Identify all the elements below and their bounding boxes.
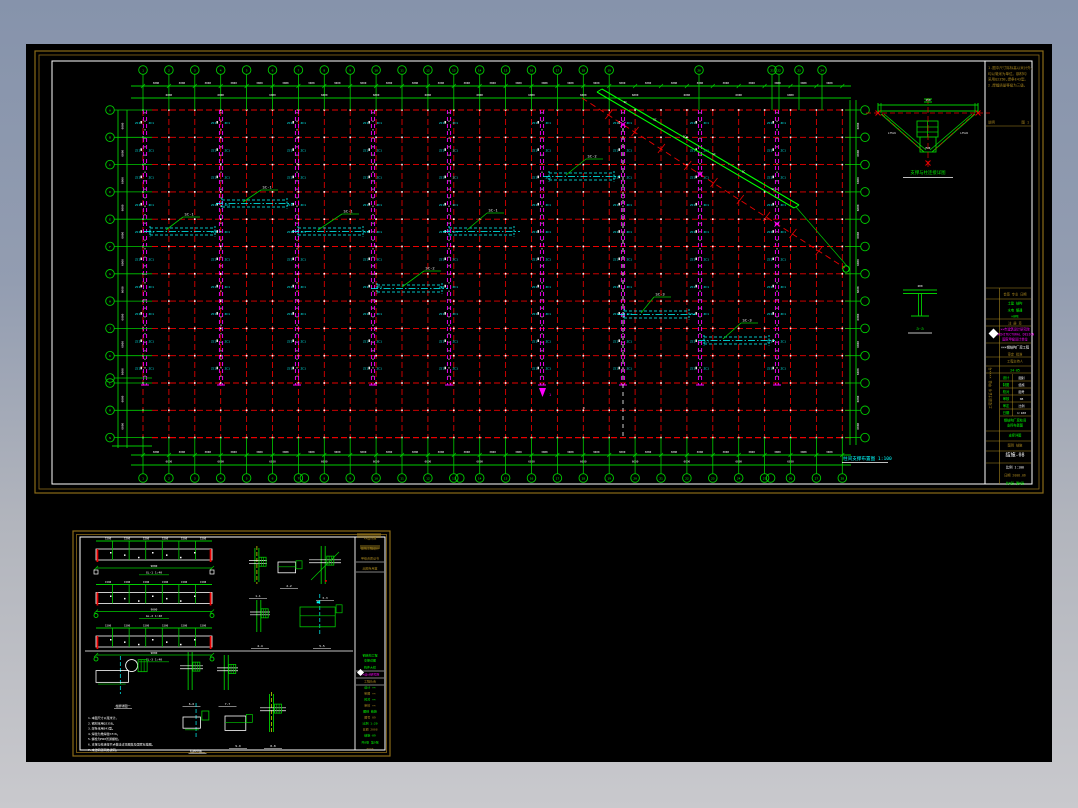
- svg-text:6000: 6000: [121, 395, 125, 402]
- svg-text:1.图中尺寸除标高以米计外,: 1.图中尺寸除标高以米计外,: [988, 65, 1033, 70]
- svg-text:3000: 3000: [619, 81, 626, 85]
- svg-text:5.螺栓为M20普通螺栓。: 5.螺栓为M20普通螺栓。: [88, 736, 121, 741]
- svg-text:3000: 3000: [464, 450, 471, 454]
- svg-text:ZC1: ZC1: [690, 176, 696, 180]
- svg-text:3000: 3000: [386, 450, 393, 454]
- svg-text:9: 9: [349, 476, 351, 480]
- svg-text:6000: 6000: [528, 93, 535, 97]
- svg-text:ZC1: ZC1: [690, 203, 696, 207]
- canvas-background: [26, 44, 1052, 762]
- svg-text:ZC1: ZC1: [135, 203, 141, 207]
- svg-text:ZC1: ZC1: [211, 285, 217, 289]
- svg-text:钢结构工程: 钢结构工程: [362, 653, 377, 658]
- svg-text:××××: ××××: [366, 747, 373, 751]
- svg-text:3000: 3000: [723, 450, 730, 454]
- svg-text:14: 14: [478, 476, 482, 480]
- svg-text:1500: 1500: [200, 537, 207, 541]
- svg-text:6000: 6000: [269, 93, 276, 97]
- svg-text:1500: 1500: [162, 537, 169, 541]
- svg-text:ZC1: ZC1: [377, 258, 383, 262]
- svg-text:×0#E: ×0#E: [1011, 315, 1019, 319]
- svg-text:ZC1: ZC1: [211, 339, 217, 343]
- svg-text:3000: 3000: [774, 450, 781, 454]
- svg-text:ZC1: ZC1: [767, 285, 773, 289]
- svg-text:校对: 校对: [1003, 389, 1010, 394]
- svg-text:制图 ××: 制图 ××: [364, 691, 376, 696]
- svg-text:结施: 结施: [1018, 382, 1024, 387]
- svg-text:ZC1: ZC1: [546, 285, 552, 289]
- svg-text:×××钢结构厂房工程: ×××钢结构厂房工程: [1001, 345, 1030, 350]
- svg-text:ZC1: ZC1: [704, 203, 710, 207]
- svg-text:ZC1: ZC1: [225, 339, 231, 343]
- svg-text:6000: 6000: [217, 93, 224, 97]
- svg-text:ZC1: ZC1: [613, 312, 619, 316]
- svg-text:6000: 6000: [856, 122, 860, 129]
- svg-text:18: 18: [581, 68, 585, 72]
- svg-text:6-6: 6-6: [189, 702, 195, 706]
- svg-text:ZC1: ZC1: [363, 339, 369, 343]
- svg-text:ZC1: ZC1: [613, 367, 619, 371]
- svg-text:3.焊条采用E43型。: 3.焊条采用E43型。: [88, 726, 115, 731]
- svg-text:ZC1: ZC1: [135, 230, 141, 234]
- svg-text:F: F: [109, 245, 111, 249]
- svg-text:3000: 3000: [153, 81, 160, 85]
- svg-text:SC-1: SC-1: [263, 185, 273, 190]
- svg-text:ZC1: ZC1: [439, 339, 445, 343]
- svg-text:9000: 9000: [151, 651, 158, 655]
- svg-text:ZC1: ZC1: [627, 203, 633, 207]
- svg-text:审定: 审定: [1003, 403, 1010, 408]
- svg-text:ZC1: ZC1: [225, 230, 231, 234]
- svg-text:SC-1: SC-1: [489, 208, 499, 213]
- svg-text:ZC1: ZC1: [453, 176, 459, 180]
- svg-text:3000: 3000: [205, 450, 212, 454]
- svg-text:ZC1: ZC1: [767, 203, 773, 207]
- svg-text:6000: 6000: [856, 259, 860, 266]
- svg-text:28: 28: [840, 476, 844, 480]
- svg-text:6: 6: [272, 68, 274, 72]
- svg-text:19: 19: [607, 476, 611, 480]
- svg-text:均以毫米为单位。钢材均: 均以毫米为单位。钢材均: [988, 71, 1027, 76]
- svg-text:ZC1: ZC1: [225, 312, 231, 316]
- svg-text:ZC1: ZC1: [149, 148, 155, 152]
- svg-text:ZC1: ZC1: [149, 176, 155, 180]
- svg-text:6000: 6000: [787, 93, 794, 97]
- svg-text:3000: 3000: [412, 81, 419, 85]
- svg-text:ZC1: ZC1: [767, 312, 773, 316]
- svg-text:ZC1: ZC1: [532, 176, 538, 180]
- svg-text:9-9: 9-9: [235, 744, 241, 748]
- svg-text:3000: 3000: [360, 450, 367, 454]
- svg-text:ZC1: ZC1: [453, 285, 459, 289]
- svg-text:N: N: [109, 436, 111, 440]
- svg-text:ZC1: ZC1: [781, 312, 787, 316]
- svg-text:ZC1: ZC1: [627, 230, 633, 234]
- svg-text:SC-2: SC-2: [426, 266, 435, 271]
- svg-text:出图专用章: 出图专用章: [362, 566, 377, 571]
- svg-text:24-05: 24-05: [1010, 369, 1020, 373]
- svg-text:ZC1: ZC1: [149, 367, 155, 371]
- svg-text:L75×6: L75×6: [960, 131, 968, 135]
- svg-text:3000: 3000: [645, 450, 652, 454]
- svg-text:图 1: 图 1: [1022, 121, 1029, 125]
- svg-text:G: G: [109, 272, 111, 276]
- svg-text:10: 10: [374, 68, 378, 72]
- svg-text:1500: 1500: [181, 624, 188, 628]
- svg-text:比例 1:100: 比例 1:100: [1006, 465, 1024, 470]
- svg-text:9000: 9000: [151, 564, 158, 568]
- svg-text:ZC1: ZC1: [613, 230, 619, 234]
- svg-text:9000: 9000: [151, 608, 158, 612]
- svg-text:ZC1: ZC1: [135, 176, 141, 180]
- svg-text:ZC1: ZC1: [363, 312, 369, 316]
- svg-text:3000: 3000: [282, 450, 289, 454]
- svg-text:7: 7: [297, 68, 299, 72]
- svg-text:3000: 3000: [800, 81, 807, 85]
- svg-text:ZC1: ZC1: [690, 339, 696, 343]
- svg-text:6000: 6000: [121, 313, 125, 320]
- svg-text:ZC1: ZC1: [453, 367, 459, 371]
- svg-text:20: 20: [697, 68, 701, 72]
- svg-text:ZC1: ZC1: [287, 121, 293, 125]
- svg-text:ZC1: ZC1: [627, 339, 633, 343]
- svg-text:3000: 3000: [308, 81, 315, 85]
- svg-text:3000: 3000: [179, 450, 186, 454]
- svg-text:ZC1: ZC1: [704, 367, 710, 371]
- svg-text:工程主持人: 工程主持人: [1007, 359, 1024, 364]
- svg-text:3000: 3000: [489, 81, 496, 85]
- svg-text:会签 专业 日期: 会签 专业 日期: [1004, 292, 1027, 297]
- svg-text:8-8: 8-8: [270, 744, 276, 748]
- cad-drawing: ZC1ZC1ZC1ZC1ZC1ZC1ZC1ZC1ZC1ZC1ZC1ZC1ZC1Z…: [0, 0, 1078, 808]
- svg-text:1500: 1500: [105, 624, 112, 628]
- svg-text:ZC1: ZC1: [301, 121, 307, 125]
- svg-text:ZC1: ZC1: [287, 258, 293, 262]
- svg-text:土建 结构: 土建 结构: [1008, 301, 1023, 306]
- svg-text:ZC1: ZC1: [135, 285, 141, 289]
- svg-text:6000: 6000: [121, 286, 125, 293]
- svg-text:ZC1: ZC1: [613, 148, 619, 152]
- svg-text:ZC1: ZC1: [767, 339, 773, 343]
- section-detail-label: a-a: [916, 326, 924, 331]
- svg-text:M: M: [109, 409, 111, 413]
- svg-text:ZC1: ZC1: [439, 312, 445, 316]
- svg-text:ZC1: ZC1: [149, 339, 155, 343]
- svg-text:J: J: [109, 327, 111, 331]
- svg-text:3000: 3000: [748, 81, 755, 85]
- svg-text:6000: 6000: [735, 93, 742, 97]
- svg-text:ZC1: ZC1: [149, 312, 155, 316]
- svg-text:C: C: [109, 163, 111, 167]
- svg-text:ZC1: ZC1: [627, 148, 633, 152]
- svg-text:ZC1: ZC1: [613, 203, 619, 207]
- svg-text:21: 21: [659, 476, 663, 480]
- svg-text:27: 27: [815, 476, 819, 480]
- svg-text:23: 23: [797, 68, 801, 72]
- svg-text:支撑详图: 支撑详图: [364, 658, 376, 663]
- svg-text:ZC1: ZC1: [546, 148, 552, 152]
- svg-text:H: H: [109, 299, 111, 303]
- svg-text:6: 6: [272, 476, 274, 480]
- svg-text:ZC1: ZC1: [453, 230, 459, 234]
- svg-text:6.支撑与柱连接节点做法详见图集及国家标准图。: 6.支撑与柱连接节点做法详见图集及国家标准图。: [88, 742, 155, 747]
- svg-text:日期 2008: 日期 2008: [362, 727, 377, 732]
- svg-text:3: 3: [194, 68, 196, 72]
- svg-text:19: 19: [607, 68, 611, 72]
- svg-text:柱脚详图二: 柱脚详图二: [190, 748, 205, 753]
- svg-text:ZC1: ZC1: [301, 312, 307, 316]
- svg-text:3000: 3000: [230, 81, 237, 85]
- svg-text:2: 2: [168, 68, 170, 72]
- svg-text:ZC1: ZC1: [301, 230, 307, 234]
- svg-text:4-4: 4-4: [257, 644, 263, 648]
- svg-text:6000: 6000: [856, 150, 860, 157]
- svg-text:ZC1: ZC1: [613, 339, 619, 343]
- svg-text:ZC1: ZC1: [377, 367, 383, 371]
- svg-text:国家甲级设计单位: 国家甲级设计单位: [1002, 337, 1028, 342]
- svg-text:ZC1: ZC1: [627, 121, 633, 125]
- svg-text:7.未注明者同总说明。: 7.未注明者同总说明。: [88, 747, 119, 752]
- svg-text:3000: 3000: [515, 450, 522, 454]
- svg-text:17: 17: [556, 68, 560, 72]
- svg-text:设计: 设计: [1003, 375, 1010, 380]
- svg-text:ZC1: ZC1: [149, 258, 155, 262]
- svg-text:ZC1: ZC1: [546, 312, 552, 316]
- svg-text:ZC1: ZC1: [363, 258, 369, 262]
- svg-text:SC-1: SC-1: [344, 209, 354, 214]
- svg-text:ZC1: ZC1: [301, 367, 307, 371]
- svg-text:6000: 6000: [632, 93, 639, 97]
- svg-text:K: K: [109, 354, 111, 358]
- svg-text:ZC1: ZC1: [627, 367, 633, 371]
- svg-text:审核 ××: 审核 ××: [364, 703, 376, 708]
- svg-text:1.本图尺寸以毫米计。: 1.本图尺寸以毫米计。: [88, 715, 119, 720]
- svg-text:支撑布置图: 支撑布置图: [1007, 423, 1023, 428]
- svg-text:22: 22: [685, 476, 689, 480]
- svg-text:3000: 3000: [800, 450, 807, 454]
- svg-text:ZC1: ZC1: [546, 367, 552, 371]
- svg-text:ZC1: ZC1: [301, 176, 307, 180]
- svg-text:ZC1: ZC1: [767, 367, 773, 371]
- svg-text:SC: SC: [624, 100, 628, 104]
- svg-text:20: 20: [633, 476, 637, 480]
- svg-text:ZC1: ZC1: [287, 148, 293, 152]
- svg-text:构件大样: 构件大样: [364, 665, 376, 670]
- svg-text:ZC1: ZC1: [225, 176, 231, 180]
- svg-text:9: 9: [349, 68, 351, 72]
- svg-text:结施-08: 结施-08: [1005, 452, 1024, 459]
- svg-text:1500: 1500: [143, 624, 150, 628]
- svg-text:3000: 3000: [412, 450, 419, 454]
- svg-text:08: 08: [1020, 397, 1024, 401]
- svg-text:6000: 6000: [580, 93, 587, 97]
- svg-text:图别 结施: 图别 结施: [1008, 443, 1023, 448]
- svg-text:图号 09: 图号 09: [364, 715, 376, 720]
- svg-text:3000: 3000: [334, 450, 341, 454]
- svg-text:1: 1: [142, 476, 144, 480]
- svg-text:6000: 6000: [856, 204, 860, 211]
- svg-text:22: 22: [777, 68, 781, 72]
- svg-text:××市建筑设计研究院: ××市建筑设计研究院: [1000, 327, 1030, 332]
- svg-text:图别: 图别: [1018, 375, 1024, 380]
- svg-text:11: 11: [400, 476, 404, 480]
- svg-text:3000: 3000: [438, 450, 445, 454]
- svg-text:ZC1: ZC1: [377, 339, 383, 343]
- svg-text:3000: 3000: [697, 81, 704, 85]
- svg-text:ZC1: ZC1: [439, 121, 445, 125]
- svg-text:支撑详图: 支撑详图: [1009, 433, 1022, 438]
- svg-text:3000: 3000: [774, 81, 781, 85]
- svg-text:6000: 6000: [856, 341, 860, 348]
- svg-text:1-1: 1-1: [255, 594, 261, 598]
- svg-text:3-3: 3-3: [322, 596, 328, 600]
- svg-text:3000: 3000: [541, 450, 548, 454]
- svg-text:ZC1: ZC1: [149, 121, 155, 125]
- svg-text:3000: 3000: [826, 450, 833, 454]
- svg-text:ZC1: ZC1: [287, 230, 293, 234]
- svg-text:ZC1: ZC1: [301, 285, 307, 289]
- svg-text:6000: 6000: [856, 368, 860, 375]
- svg-text:M20: M20: [926, 146, 931, 150]
- svg-text:ZC1: ZC1: [439, 176, 445, 180]
- svg-text:2-2: 2-2: [286, 584, 292, 588]
- svg-text:ZC1: ZC1: [377, 230, 383, 234]
- svg-text:6000: 6000: [121, 122, 125, 129]
- svg-text:3000: 3000: [671, 81, 678, 85]
- svg-text:24: 24: [820, 68, 824, 72]
- svg-text:23: 23: [711, 476, 715, 480]
- svg-text:1500: 1500: [181, 580, 188, 584]
- svg-text:ZC1: ZC1: [613, 285, 619, 289]
- svg-text:ZC1: ZC1: [781, 230, 787, 234]
- svg-text:4: 4: [220, 68, 222, 72]
- svg-text:ZC1: ZC1: [149, 285, 155, 289]
- svg-text:ZC1: ZC1: [546, 339, 552, 343]
- svg-text:ZC1: ZC1: [439, 203, 445, 207]
- svg-text:6000: 6000: [856, 313, 860, 320]
- svg-text:1: 1: [142, 68, 144, 72]
- svg-text:ZC1: ZC1: [135, 121, 141, 125]
- svg-text:2.钢材采用Q235B。: 2.钢材采用Q235B。: [88, 720, 116, 725]
- svg-text:6000: 6000: [121, 177, 125, 184]
- svg-text:3000: 3000: [282, 81, 289, 85]
- svg-text:3000: 3000: [723, 81, 730, 85]
- svg-text:ZC1: ZC1: [439, 230, 445, 234]
- svg-text:ZC1: ZC1: [781, 121, 787, 125]
- svg-text:6000: 6000: [373, 93, 380, 97]
- svg-text:D: D: [109, 190, 111, 194]
- svg-text:ZC1: ZC1: [781, 148, 787, 152]
- svg-text:ZC1: ZC1: [704, 121, 710, 125]
- svg-text:ZC1: ZC1: [781, 258, 787, 262]
- svg-text:15: 15: [504, 476, 508, 480]
- svg-text:ZC1: ZC1: [546, 121, 552, 125]
- svg-text:ZC1: ZC1: [627, 312, 633, 316]
- svg-text:审定 批准: 审定 批准: [1008, 352, 1023, 357]
- svg-text:图号: 图号: [1018, 389, 1024, 394]
- svg-text:4.焊缝为角焊缝hf=6。: 4.焊缝为角焊缝hf=6。: [88, 731, 120, 736]
- svg-text:3000: 3000: [360, 81, 367, 85]
- svg-text:3000: 3000: [515, 81, 522, 85]
- svg-text:12: 12: [426, 476, 430, 480]
- svg-text:ZC1: ZC1: [363, 203, 369, 207]
- svg-text:8: 8: [323, 68, 325, 72]
- svg-text:ZC1: ZC1: [287, 176, 293, 180]
- svg-text:1500: 1500: [200, 624, 207, 628]
- svg-text:6000: 6000: [121, 368, 125, 375]
- svg-text:SC: SC: [683, 135, 687, 139]
- svg-text:1500: 1500: [162, 580, 169, 584]
- svg-text:16: 16: [530, 476, 534, 480]
- svg-text:ZC1: ZC1: [301, 258, 307, 262]
- svg-text:4: 4: [220, 476, 222, 480]
- svg-text:柱脚详图一: 柱脚详图一: [115, 703, 130, 708]
- svg-text:ZC1: ZC1: [135, 312, 141, 316]
- svg-text:ZC1: ZC1: [546, 230, 552, 234]
- svg-text:共8张 第9张: 共8张 第9张: [361, 740, 378, 745]
- svg-text:SC: SC: [742, 170, 746, 174]
- svg-text:7: 7: [297, 476, 299, 480]
- svg-text:1500: 1500: [124, 580, 131, 584]
- svg-text:3000: 3000: [230, 450, 237, 454]
- svg-text:ZC1: ZC1: [287, 339, 293, 343]
- svg-text:±: ±: [583, 406, 585, 410]
- svg-text:SC: SC: [653, 117, 657, 121]
- svg-text:3000: 3000: [438, 81, 445, 85]
- svg-text:ZC1: ZC1: [363, 176, 369, 180]
- svg-text:6000: 6000: [856, 232, 860, 239]
- svg-text:ZC1: ZC1: [532, 203, 538, 207]
- svg-text:3: 3: [194, 476, 196, 480]
- svg-text:1500: 1500: [124, 624, 131, 628]
- svg-text:日期: 日期: [1003, 410, 1010, 415]
- svg-text:6000: 6000: [121, 423, 125, 430]
- svg-text:14: 14: [478, 68, 482, 72]
- svg-text:2.焊缝质量等级为三级。: 2.焊缝质量等级为三级。: [988, 82, 1027, 87]
- svg-text:3000: 3000: [256, 450, 263, 454]
- svg-text:ZC1: ZC1: [149, 230, 155, 234]
- svg-text:1500: 1500: [181, 537, 188, 541]
- svg-text:ZC1: ZC1: [532, 230, 538, 234]
- svg-text:比例 1:20: 比例 1:20: [362, 721, 377, 726]
- svg-text:3000: 3000: [593, 81, 600, 85]
- svg-text:B: B: [109, 136, 111, 140]
- svg-text:工程负责: 工程负责: [364, 679, 376, 684]
- svg-text:1500: 1500: [143, 537, 150, 541]
- svg-text:E: E: [109, 218, 111, 222]
- svg-text:SC-1: SC-1: [185, 212, 195, 217]
- svg-text:ZC1: ZC1: [690, 230, 696, 234]
- svg-text:ZC1: ZC1: [690, 258, 696, 262]
- svg-text:6000: 6000: [856, 177, 860, 184]
- svg-text:ZC1: ZC1: [439, 367, 445, 371]
- svg-text:采用Q235B,焊条E43型。: 采用Q235B,焊条E43型。: [988, 77, 1028, 82]
- svg-text:ZC1: ZC1: [781, 203, 787, 207]
- svg-text:ZC1: ZC1: [690, 285, 696, 289]
- svg-text:ZC1: ZC1: [225, 121, 231, 125]
- svg-text:ZC1: ZC1: [546, 203, 552, 207]
- svg-text:17: 17: [556, 476, 560, 480]
- svg-text:ZC1: ZC1: [453, 339, 459, 343]
- svg-text:ZC1: ZC1: [532, 258, 538, 262]
- svg-text:3000: 3000: [489, 450, 496, 454]
- svg-text:ZC1: ZC1: [149, 203, 155, 207]
- svg-text:6000: 6000: [856, 395, 860, 402]
- svg-text:6000: 6000: [856, 423, 860, 430]
- svg-text:GL-1 1:40: GL-1 1:40: [146, 571, 162, 575]
- svg-text:ZC1: ZC1: [704, 285, 710, 289]
- svg-text:5-5: 5-5: [319, 644, 325, 648]
